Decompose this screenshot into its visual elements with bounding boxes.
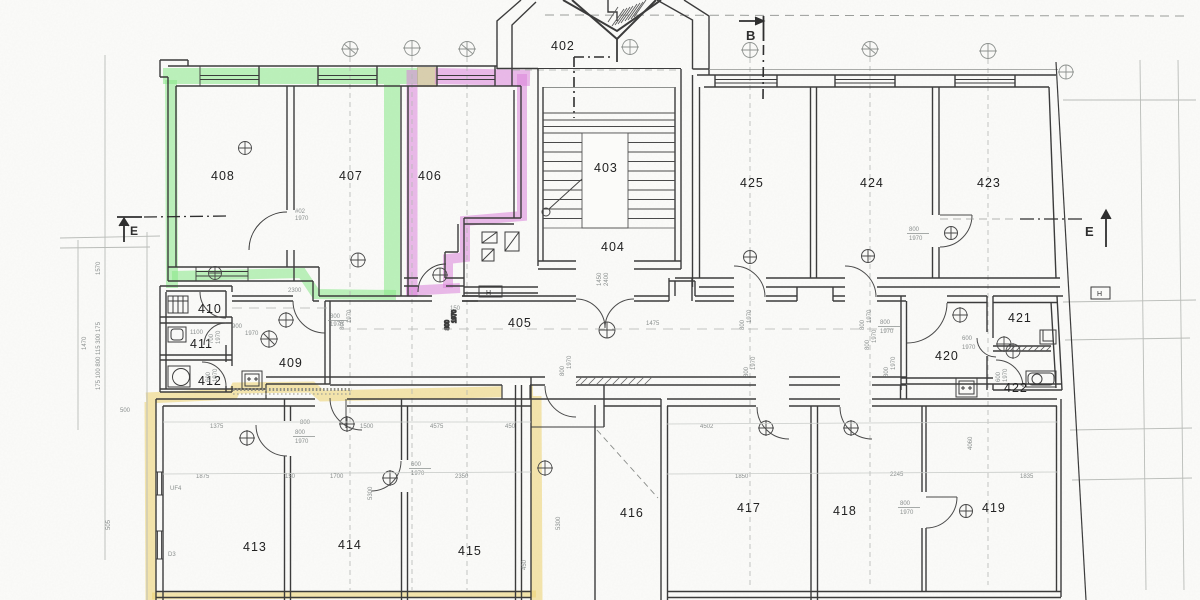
svg-text:1970: 1970 (962, 345, 976, 351)
svg-text:700: 700 (209, 333, 215, 344)
svg-text:1970: 1970 (867, 309, 873, 323)
svg-text:407: 407 (339, 169, 363, 183)
svg-text:5300: 5300 (556, 516, 562, 530)
svg-text:500: 500 (120, 408, 131, 414)
svg-text:150: 150 (285, 474, 296, 480)
svg-text:800: 800 (300, 420, 311, 426)
svg-text:4575: 4575 (430, 424, 444, 430)
svg-text:B: B (746, 28, 755, 43)
svg-text:800: 800 (900, 501, 911, 507)
svg-text:600: 600 (206, 371, 212, 382)
svg-text:800: 800 (445, 319, 451, 330)
svg-text:404: 404 (601, 240, 625, 254)
svg-text:422: 422 (1004, 381, 1028, 395)
svg-text:1475: 1475 (646, 321, 660, 327)
svg-text:408: 408 (211, 169, 235, 183)
svg-text:1835: 1835 (1020, 474, 1034, 480)
svg-text:418: 418 (833, 504, 857, 518)
svg-text:1500: 1500 (360, 424, 374, 430)
svg-text:1970: 1970 (295, 439, 309, 445)
svg-text:1970: 1970 (411, 471, 425, 477)
svg-text:600: 600 (962, 336, 973, 342)
svg-text:4502: 4502 (700, 424, 714, 430)
svg-text:417: 417 (737, 501, 761, 515)
svg-text:414: 414 (338, 538, 362, 552)
svg-text:410: 410 (198, 302, 222, 316)
svg-text:1970: 1970 (891, 356, 897, 370)
svg-text:800: 800 (865, 339, 871, 350)
svg-text:1875: 1875 (196, 474, 210, 480)
svg-text:424: 424 (860, 176, 884, 190)
svg-text:1970: 1970 (245, 331, 259, 337)
svg-text:409: 409 (279, 356, 303, 370)
svg-text:505: 505 (106, 519, 112, 530)
svg-text:420: 420 (935, 349, 959, 363)
svg-text:800: 800 (884, 366, 890, 377)
svg-text:416: 416 (620, 506, 644, 520)
svg-text:450: 450 (505, 424, 516, 430)
svg-text:413: 413 (243, 540, 267, 554)
svg-text:1450: 1450 (597, 272, 603, 286)
svg-text:150: 150 (450, 306, 461, 312)
svg-text:H: H (1097, 291, 1102, 298)
svg-text:900: 900 (232, 324, 243, 330)
svg-text:1970: 1970 (751, 356, 757, 370)
svg-text:406: 406 (418, 169, 442, 183)
svg-text:403: 403 (594, 161, 618, 175)
svg-text:1970: 1970 (872, 329, 878, 343)
svg-text:405: 405 (508, 316, 532, 330)
svg-text:2400: 2400 (604, 272, 610, 286)
svg-text:800: 800 (744, 366, 750, 377)
svg-text:600: 600 (411, 462, 422, 468)
svg-text:800: 800 (740, 319, 746, 330)
svg-text:1970: 1970 (1003, 368, 1009, 382)
svg-text:E: E (130, 224, 138, 238)
svg-text:1970: 1970 (295, 216, 309, 222)
svg-text:1850: 1850 (735, 474, 749, 480)
svg-text:1570: 1570 (96, 261, 102, 275)
svg-text:1970: 1970 (900, 510, 914, 516)
svg-text:D3: D3 (168, 552, 176, 558)
svg-text:E: E (1085, 224, 1094, 239)
svg-text:800: 800 (560, 365, 566, 376)
svg-text:1375: 1375 (210, 424, 224, 430)
svg-text:415: 415 (458, 544, 482, 558)
svg-text:423: 423 (977, 176, 1001, 190)
svg-text:425: 425 (740, 176, 764, 190)
svg-text:402: 402 (551, 39, 575, 53)
svg-text:2350: 2350 (455, 474, 469, 480)
svg-text:800: 800 (330, 314, 341, 320)
svg-text:1700: 1700 (330, 474, 344, 480)
svg-text:600: 600 (996, 371, 1002, 382)
svg-text:1970: 1970 (909, 236, 923, 242)
svg-text:1970: 1970 (347, 309, 353, 323)
svg-text:1970: 1970 (216, 330, 222, 344)
svg-text:1970: 1970 (567, 355, 573, 369)
svg-text:#02: #02 (295, 209, 306, 215)
svg-text:1100: 1100 (190, 330, 204, 336)
svg-text:2300: 2300 (288, 288, 302, 294)
svg-text:5300: 5300 (368, 486, 374, 500)
svg-text:1970: 1970 (880, 329, 894, 335)
svg-text:800: 800 (295, 430, 306, 436)
svg-text:1970: 1970 (213, 368, 219, 382)
svg-text:800: 800 (880, 320, 891, 326)
svg-text:1970: 1970 (747, 309, 753, 323)
svg-text:419: 419 (982, 501, 1006, 515)
svg-text:800: 800 (860, 319, 866, 330)
svg-text:UF4: UF4 (170, 486, 182, 492)
svg-text:1970: 1970 (330, 322, 344, 328)
svg-text:4060: 4060 (968, 436, 974, 450)
svg-text:800: 800 (909, 227, 920, 233)
svg-text:1470: 1470 (82, 336, 88, 350)
svg-text:175 100 800 115 300 175: 175 100 800 115 300 175 (96, 321, 102, 390)
svg-text:450: 450 (522, 559, 528, 570)
svg-text:421: 421 (1008, 311, 1032, 325)
